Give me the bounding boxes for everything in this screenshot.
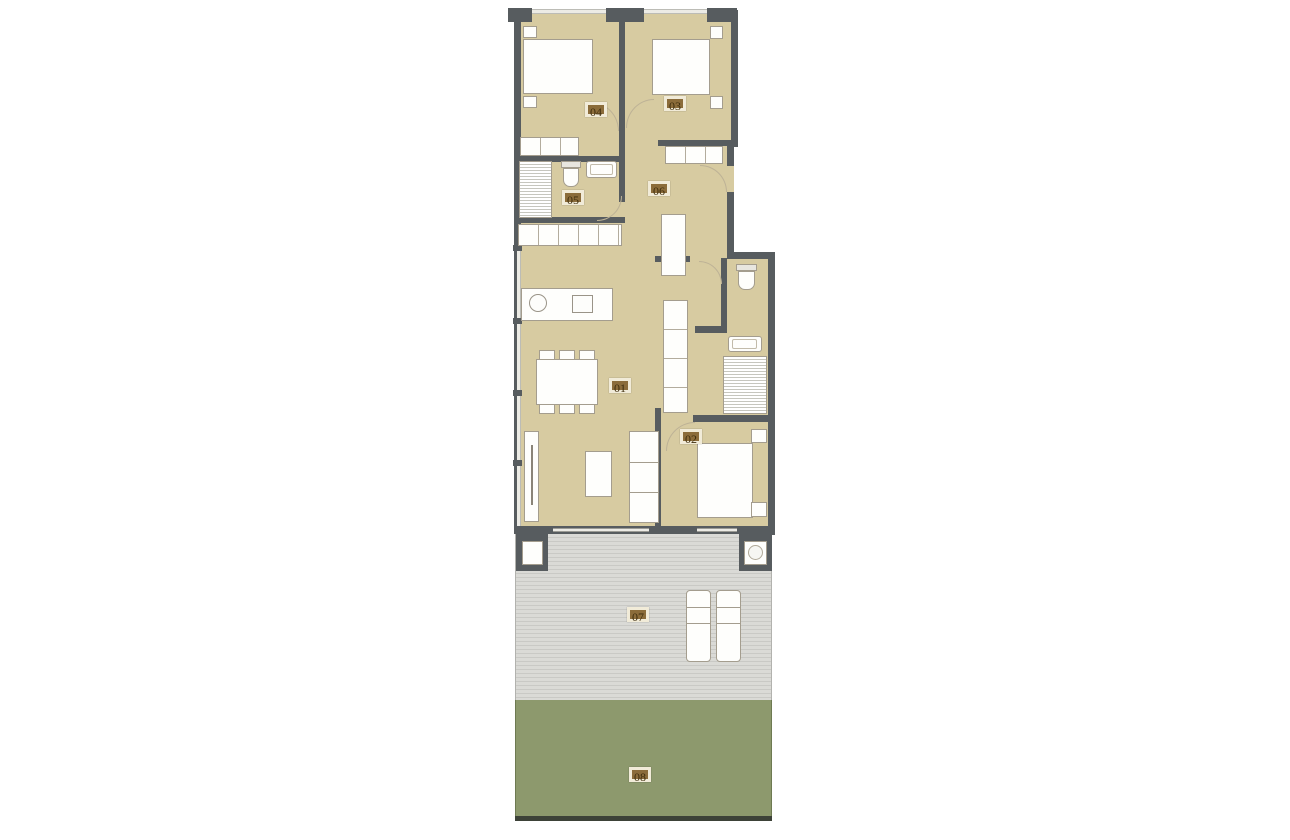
sofa bbox=[629, 431, 659, 523]
toilet-bath2 bbox=[738, 271, 755, 290]
wall-bedroom02-north bbox=[693, 415, 768, 422]
sun-lounger bbox=[716, 590, 741, 662]
closet-corridor bbox=[663, 300, 688, 413]
toilet-tank-bath2 bbox=[736, 264, 757, 271]
floorplan-canvas: 01 02 03 04 05 06 07 08 bbox=[0, 0, 1290, 840]
dining-chair bbox=[579, 404, 595, 414]
room-label-07: 07 bbox=[627, 607, 649, 622]
closet-hallway-top bbox=[665, 146, 723, 164]
sofa-cushion-line bbox=[629, 492, 659, 493]
terrace-pillar-planter-icon bbox=[748, 545, 763, 560]
nightstand bbox=[710, 96, 723, 109]
coffee-table bbox=[585, 451, 612, 497]
sink-basin-icon bbox=[590, 164, 613, 175]
sink-basin-icon bbox=[732, 339, 757, 349]
cooktop-icon bbox=[572, 295, 593, 313]
lounger-section-line bbox=[716, 607, 741, 608]
shower-bath05 bbox=[519, 161, 552, 218]
terrace-pillar-left-core bbox=[522, 541, 543, 565]
wall-entry-north bbox=[727, 146, 734, 166]
wall-entry-south bbox=[727, 192, 734, 258]
shower-bath2 bbox=[723, 356, 767, 414]
window-mullion-tick bbox=[513, 390, 522, 396]
wall-left-lower bbox=[514, 250, 517, 528]
nightstand bbox=[710, 26, 723, 39]
dining-table bbox=[536, 359, 598, 405]
room-label-01: 01 bbox=[609, 378, 631, 393]
sliding-door-glass-living bbox=[553, 528, 649, 532]
bed-bedroom03 bbox=[652, 39, 710, 95]
toilet-tank-bath05 bbox=[561, 161, 581, 168]
kitchen-sink-icon bbox=[529, 294, 547, 312]
nightstand bbox=[751, 502, 767, 517]
dining-chair bbox=[559, 404, 575, 414]
toilet-bath05 bbox=[563, 168, 579, 187]
nightstand bbox=[751, 429, 767, 443]
window-mullion-tick bbox=[513, 460, 522, 466]
lounger-section-line bbox=[716, 623, 741, 624]
room-label-02: 02 bbox=[680, 429, 702, 444]
sliding-door-glass-bedroom02 bbox=[697, 528, 737, 532]
wall-right-lower bbox=[768, 252, 775, 535]
garden bbox=[515, 700, 772, 816]
dining-chair bbox=[539, 404, 555, 414]
nightstand bbox=[523, 96, 537, 108]
room-label-08: 08 bbox=[629, 767, 651, 782]
nightstand bbox=[523, 26, 537, 38]
sofa-cushion-line bbox=[629, 462, 659, 463]
dining-chair bbox=[559, 350, 575, 360]
room-label-05: 05 bbox=[562, 190, 584, 205]
garden-bottom-edge bbox=[515, 816, 772, 821]
wardrobe-bedroom04 bbox=[520, 137, 579, 156]
room-label-06: 06 bbox=[648, 181, 670, 196]
room-label-03: 03 bbox=[664, 96, 686, 111]
wall-bath2-mid bbox=[695, 326, 727, 333]
wall-bath2-west bbox=[721, 258, 727, 330]
wardrobe-hallway bbox=[661, 214, 686, 276]
wall-bedroom-partition bbox=[619, 12, 625, 158]
lounger-section-line bbox=[686, 623, 711, 624]
room-label-04: 04 bbox=[585, 102, 607, 117]
lounger-section-line bbox=[686, 607, 711, 608]
wall-top-center-pier bbox=[606, 8, 644, 22]
dining-chair bbox=[539, 350, 555, 360]
sun-lounger bbox=[686, 590, 711, 662]
wall-right-upper bbox=[731, 10, 738, 147]
bed-bedroom02 bbox=[697, 443, 753, 518]
kitchen-cabinets bbox=[518, 224, 622, 246]
bed-bedroom04 bbox=[523, 39, 593, 94]
dining-chair bbox=[579, 350, 595, 360]
tv-icon bbox=[531, 445, 533, 505]
